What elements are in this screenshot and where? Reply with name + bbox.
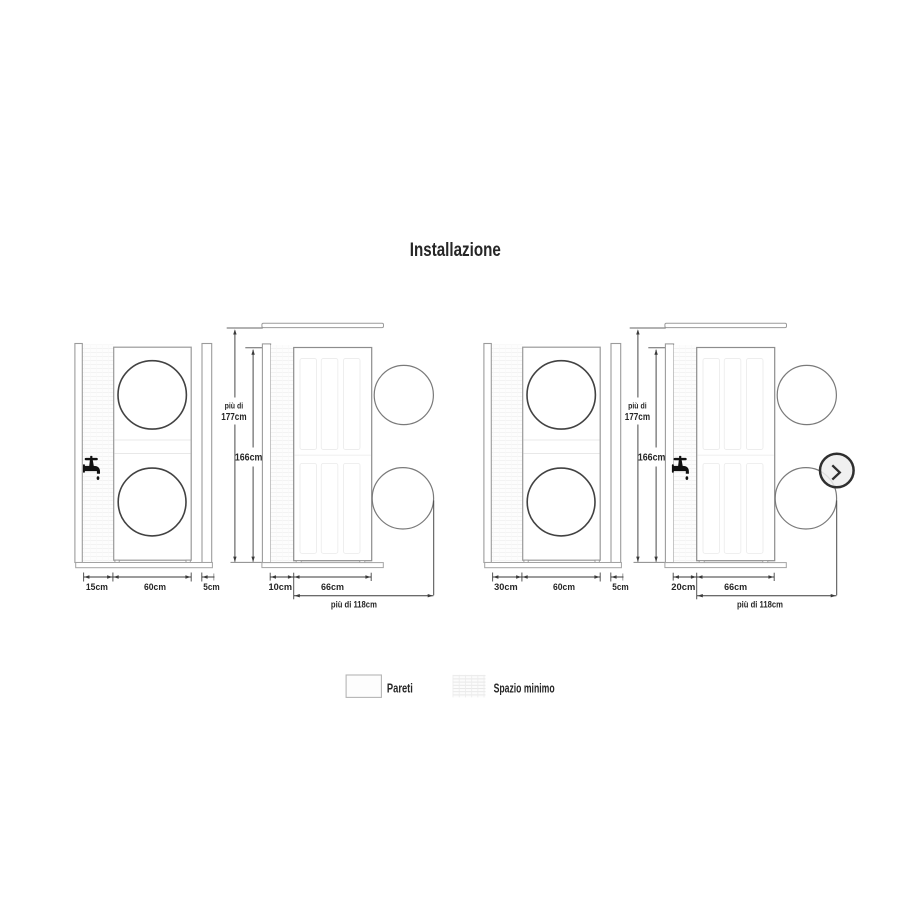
svg-text:più di: più di xyxy=(225,401,244,410)
svg-text:più di 118cm: più di 118cm xyxy=(331,600,377,610)
svg-text:30cm: 30cm xyxy=(494,582,518,593)
svg-text:5cm: 5cm xyxy=(203,582,220,593)
svg-text:66cm: 66cm xyxy=(321,582,344,593)
svg-text:Pareti: Pareti xyxy=(387,680,413,695)
svg-text:20cm: 20cm xyxy=(671,582,695,593)
svg-text:più di: più di xyxy=(628,401,647,410)
svg-text:più di 118cm: più di 118cm xyxy=(737,600,783,610)
svg-text:5cm: 5cm xyxy=(612,582,629,593)
svg-text:60cm: 60cm xyxy=(144,582,166,593)
svg-text:10cm: 10cm xyxy=(269,582,293,593)
svg-text:Spazio minimo: Spazio minimo xyxy=(494,680,555,695)
svg-text:166cm: 166cm xyxy=(638,453,666,464)
svg-text:177cm: 177cm xyxy=(221,412,246,423)
svg-text:177cm: 177cm xyxy=(625,412,650,423)
svg-text:15cm: 15cm xyxy=(86,582,108,593)
svg-text:166cm: 166cm xyxy=(235,453,263,464)
svg-text:66cm: 66cm xyxy=(724,582,747,593)
svg-text:60cm: 60cm xyxy=(553,582,575,593)
svg-text:Installazione: Installazione xyxy=(410,239,501,261)
